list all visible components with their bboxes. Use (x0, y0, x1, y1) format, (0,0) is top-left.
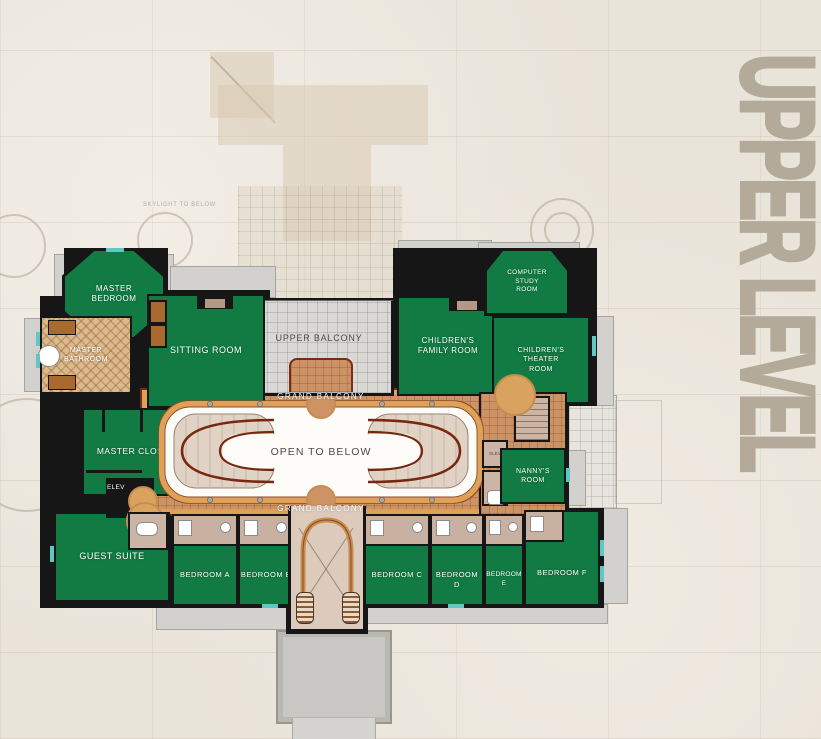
room-bedroom-a: BEDROOM A (172, 514, 238, 606)
label-bedroom-c: BEDROOM C (366, 570, 428, 580)
label-childrens-theater: CHILDREN'S THEATER ROOM (518, 346, 565, 373)
label-bedroom-d: BEDROOM D (432, 570, 482, 590)
room-bedroom-f: BEDROOM F (524, 510, 600, 606)
bedroom-bath (486, 516, 522, 546)
tub-icon (38, 345, 60, 367)
room-bedroom-b: BEDROOM B (238, 514, 294, 606)
label-master-bathroom: MASTER BATHROOM (64, 346, 108, 364)
label-bedroom-e: BEDROOM E (486, 571, 522, 588)
window-accent (106, 248, 124, 252)
bedroom-bath (240, 516, 292, 546)
title-upper-level: UPPER LEVEL (737, 54, 816, 470)
ghost-skylight-label: SKYLIGHT TO BELOW (143, 202, 216, 208)
window-accent (262, 604, 278, 608)
fireplace-icon (449, 296, 485, 311)
room-bedroom-d: BEDROOM D (430, 514, 484, 606)
walkway (292, 718, 376, 739)
window-accent (36, 332, 40, 346)
bedroom-bath (366, 516, 428, 546)
ghost-right-terrace-outline (615, 400, 662, 504)
closet-partition (102, 408, 105, 432)
window-accent (448, 604, 464, 608)
room-bedroom-c: BEDROOM C (364, 514, 430, 606)
room-nannys: NANNY'S ROOM (500, 448, 566, 504)
label-bedroom-a: BEDROOM A (174, 570, 236, 580)
window-accent (36, 354, 40, 368)
column-coil-icon (342, 592, 360, 624)
room-computer-study: COMPUTER STUDY ROOM (484, 248, 570, 316)
window-accent (592, 336, 596, 356)
window-accent (600, 566, 604, 582)
vanity-icon (48, 375, 76, 390)
label-nannys-room: NANNY'S ROOM (516, 467, 550, 485)
grand-staircase-west (174, 414, 288, 488)
grand-staircase-east (354, 414, 468, 488)
label-childrens-family: CHILDREN'S FAMILY ROOM (418, 336, 478, 357)
bedroom-bath (432, 516, 482, 546)
label-bedroom-b: BEDROOM B (240, 570, 292, 580)
open-to-below-stairwell (150, 398, 492, 506)
vanity-icon (48, 320, 76, 335)
label-master-bedroom: MASTER BEDROOM (92, 284, 137, 305)
label-sitting-room: SITTING ROOM (170, 345, 242, 357)
label-upper-balcony: UPPER BALCONY (247, 333, 391, 345)
bedroom-bath (174, 516, 236, 546)
bedroom-bath (526, 512, 564, 542)
window-accent (50, 546, 54, 562)
fireplace-icon (197, 294, 233, 309)
label-computer-study: COMPUTER STUDY ROOM (507, 269, 547, 294)
ghost-roof-bar (218, 85, 428, 145)
room-master-bathroom: MASTER BATHROOM (40, 316, 132, 394)
window-accent (600, 540, 604, 556)
label-guest-suite: GUEST SUITE (79, 551, 144, 563)
window-accent (566, 468, 570, 482)
ghost-side-circle (0, 214, 46, 278)
room-childrens-family: CHILDREN'S FAMILY ROOM (397, 296, 499, 396)
guest-bath (128, 512, 168, 550)
grand-balcony-bump (289, 358, 353, 392)
floor-plan-canvas: SKYLIGHT TO BELOW (0, 0, 821, 739)
wardrobe-icon (149, 300, 167, 324)
room-bedroom-e: BEDROOM E (484, 514, 524, 606)
label-elevator: ELEV (107, 484, 125, 492)
label-bedroom-f: BEDROOM F (526, 568, 598, 578)
closet-partition (86, 470, 142, 473)
rotunda-circle (494, 374, 536, 416)
closet-partition (140, 408, 143, 432)
wardrobe-icon (149, 324, 167, 348)
column-coil-icon (296, 592, 314, 624)
porte-cochere-roof (276, 630, 392, 724)
